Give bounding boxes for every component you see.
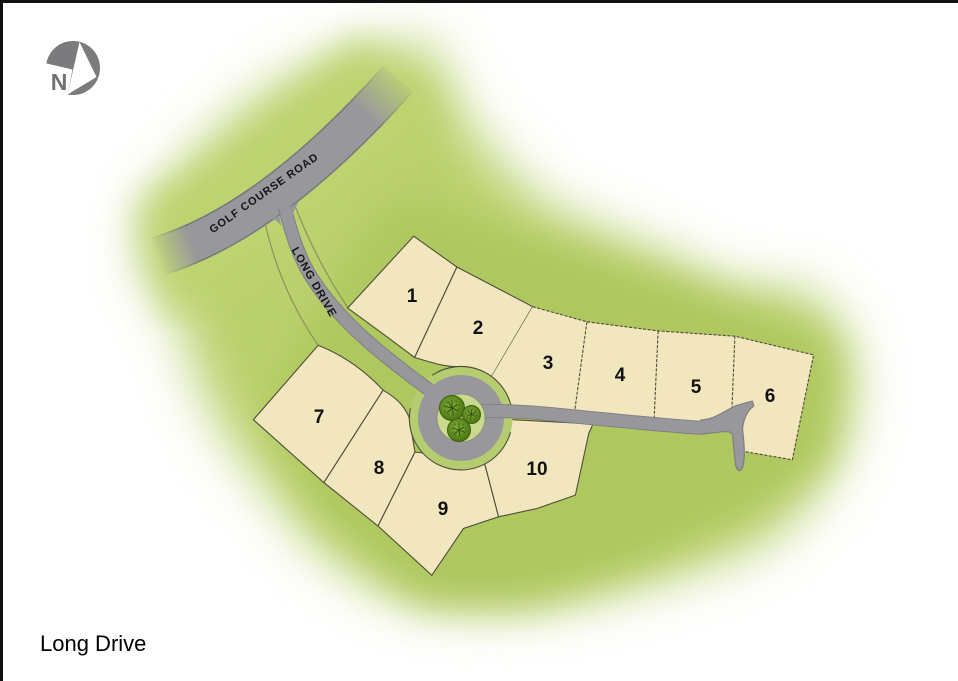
svg-text:5: 5 [691,377,702,398]
svg-text:6: 6 [765,386,776,407]
svg-text:3: 3 [543,353,554,374]
svg-text:8: 8 [374,458,385,479]
svg-text:2: 2 [473,318,484,339]
svg-text:4: 4 [615,365,626,386]
svg-text:1: 1 [407,286,418,307]
svg-text:9: 9 [438,499,449,520]
svg-text:N: N [51,69,68,95]
svg-text:Long Drive: Long Drive [40,631,146,656]
svg-text:10: 10 [526,459,547,480]
svg-text:7: 7 [314,407,325,428]
